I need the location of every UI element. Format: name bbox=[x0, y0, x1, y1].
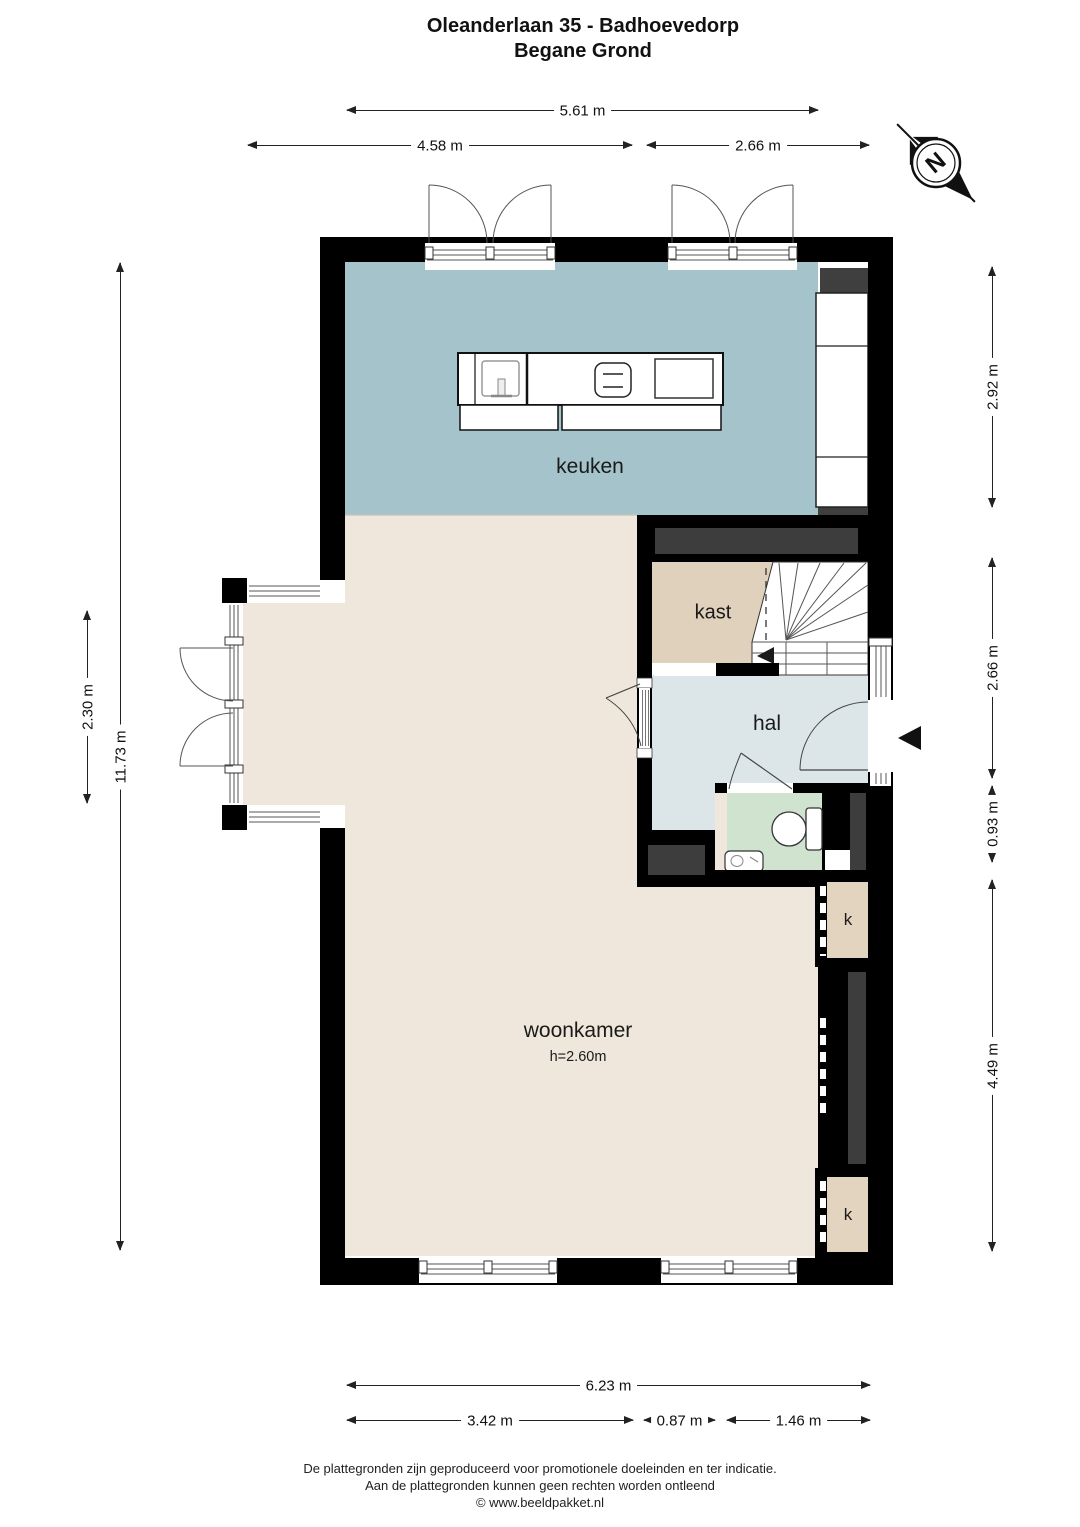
cupboard-top-label: k bbox=[844, 910, 853, 930]
bay-window-floor bbox=[243, 603, 345, 805]
kitchen-label: keuken bbox=[556, 455, 624, 479]
compass-north-icon: N bbox=[880, 107, 992, 219]
floorplan-drawing: N bbox=[0, 0, 1080, 1527]
island-appliance bbox=[655, 359, 713, 398]
dimension-bottom-middle: 0.87 m bbox=[643, 1412, 716, 1430]
footer-line-2: Aan de plattegronden kunnen geen rechten… bbox=[140, 1477, 940, 1494]
cupboard-top bbox=[815, 873, 868, 967]
front-door-opening bbox=[868, 700, 893, 772]
staircase bbox=[752, 562, 868, 675]
toilet-bowl bbox=[772, 812, 806, 846]
duct-void-top bbox=[637, 515, 868, 562]
dimension-left-total: 11.73 m bbox=[112, 262, 130, 1251]
chimney-void bbox=[818, 967, 868, 1168]
footer-disclaimer: De plattegronden zijn geproduceerd voor … bbox=[140, 1460, 940, 1511]
dimension-left-bay: 2.30 m bbox=[79, 610, 97, 804]
window-bottom-right bbox=[661, 1256, 797, 1283]
dimension-right-hall: 2.66 m bbox=[984, 557, 1002, 779]
footer-line-1: De plattegronden zijn geproduceerd voor … bbox=[140, 1460, 940, 1477]
living-room-height-label: h=2.60m bbox=[550, 1049, 607, 1065]
dimension-bottom-left: 3.42 m bbox=[346, 1412, 634, 1430]
island-cooktop bbox=[595, 363, 631, 397]
hall-label: hal bbox=[753, 712, 781, 736]
dimension-top-left: 4.58 m bbox=[247, 137, 633, 155]
window-bottom-left bbox=[419, 1256, 557, 1283]
kitchen-wall-cabinets bbox=[816, 268, 868, 526]
dimension-top-total: 5.61 m bbox=[346, 102, 819, 120]
dimension-bottom-right: 1.46 m bbox=[726, 1412, 871, 1430]
footer-copyright: © www.beeldpakket.nl bbox=[140, 1494, 940, 1511]
dimension-right-living: 4.49 m bbox=[984, 879, 1002, 1252]
floorplan-page: Oleanderlaan 35 - Badhoevedorp Begane Gr… bbox=[0, 0, 1080, 1527]
french-doors-top-right bbox=[668, 185, 797, 270]
kitchen-island bbox=[458, 353, 723, 430]
cupboard-bottom bbox=[815, 1168, 868, 1258]
dimension-right-toilet: 0.93 m bbox=[984, 785, 1002, 863]
dimension-top-right: 2.66 m bbox=[646, 137, 870, 155]
toilet-tank bbox=[806, 808, 822, 850]
closet-label: kast bbox=[695, 602, 732, 625]
living-room-label: woonkamer bbox=[524, 1019, 633, 1043]
dimension-right-kitchen: 2.92 m bbox=[984, 266, 1002, 508]
french-doors-top-left bbox=[425, 185, 555, 270]
entrance-arrow-icon bbox=[898, 726, 921, 750]
cupboard-bottom-label: k bbox=[844, 1205, 853, 1225]
dimension-bottom-total: 6.23 m bbox=[346, 1377, 871, 1395]
